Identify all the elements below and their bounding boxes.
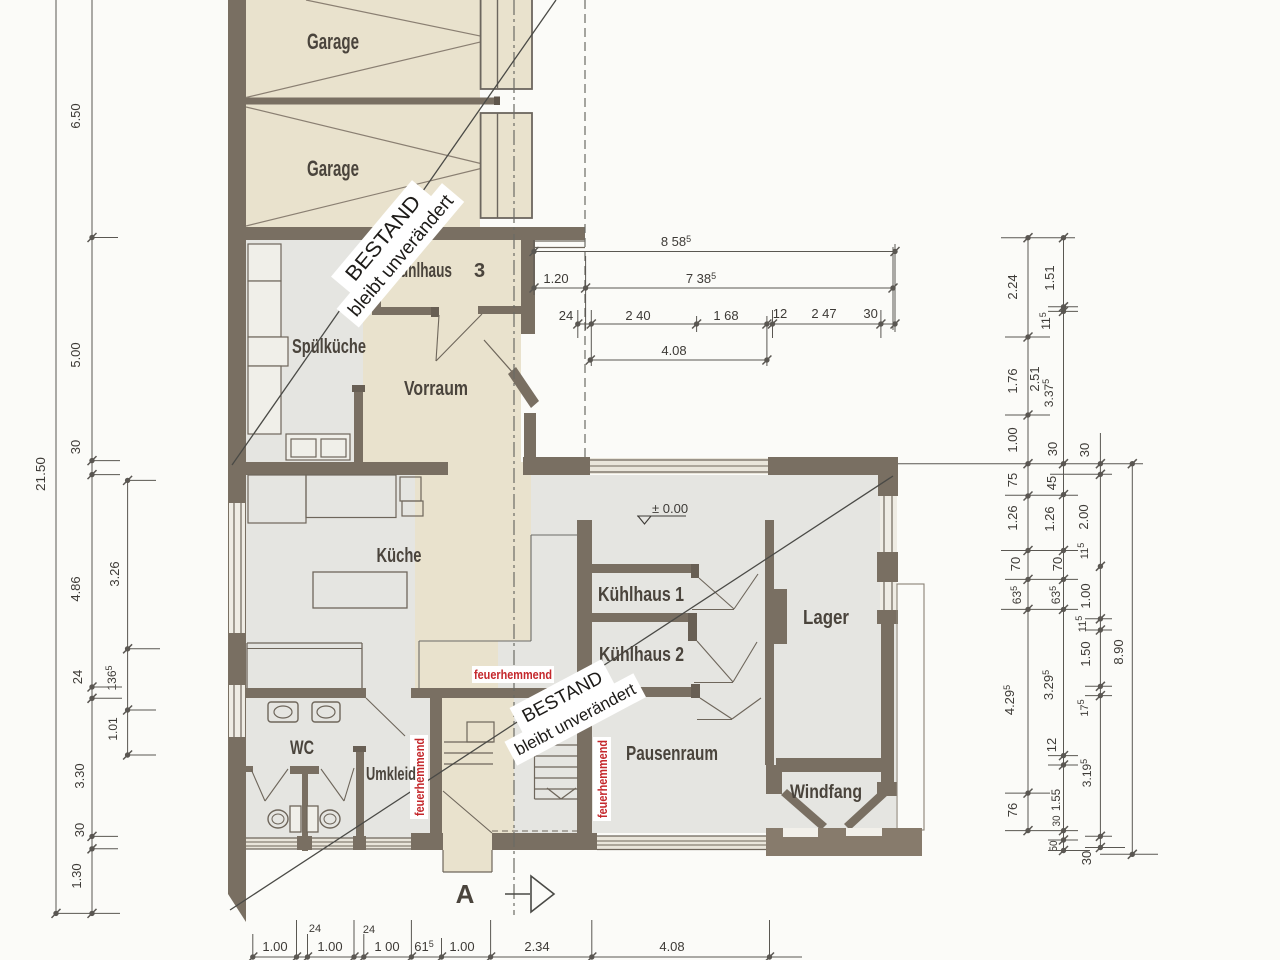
svg-text:1.00: 1.00 (1005, 427, 1020, 452)
svg-text:4.08: 4.08 (661, 343, 686, 358)
svg-text:30: 30 (72, 823, 87, 837)
svg-text:70: 70 (1008, 557, 1023, 571)
svg-text:2 40: 2 40 (625, 308, 650, 323)
svg-text:70: 70 (1050, 557, 1065, 571)
svg-text:24: 24 (309, 923, 321, 935)
svg-text:30: 30 (863, 306, 877, 321)
svg-text:2 47: 2 47 (811, 306, 836, 321)
svg-text:12: 12 (1044, 738, 1059, 752)
svg-text:2.24: 2.24 (1005, 274, 1020, 299)
svg-text:4.08: 4.08 (659, 939, 684, 954)
svg-text:1 00: 1 00 (374, 939, 399, 954)
svg-text:30: 30 (68, 440, 83, 454)
svg-text:feuerhemmend: feuerhemmend (595, 740, 610, 818)
svg-text:A: A (456, 879, 475, 909)
svg-text:6.50: 6.50 (68, 103, 83, 128)
svg-text:Garage: Garage (307, 156, 359, 181)
svg-text:24: 24 (559, 308, 573, 323)
svg-text:2.51: 2.51 (1027, 366, 1042, 391)
svg-text:1.55: 1.55 (1049, 789, 1063, 811)
svg-text:1.00: 1.00 (262, 939, 287, 954)
svg-text:30: 30 (1077, 443, 1092, 457)
svg-text:Vorraum: Vorraum (404, 378, 468, 400)
svg-text:1.00: 1.00 (1078, 583, 1093, 608)
svg-text:Windfang: Windfang (790, 782, 862, 803)
svg-text:Kühlhaus 1: Kühlhaus 1 (598, 584, 684, 606)
svg-text:30: 30 (1051, 816, 1063, 827)
svg-text:3.30: 3.30 (72, 763, 87, 788)
svg-text:1.20: 1.20 (543, 271, 568, 286)
svg-text:1.76: 1.76 (1005, 368, 1020, 393)
svg-text:1.00: 1.00 (317, 939, 342, 954)
svg-text:3: 3 (474, 260, 485, 282)
svg-text:50: 50 (1048, 841, 1060, 852)
svg-text:1.26: 1.26 (1005, 505, 1020, 530)
svg-text:Umkleid: Umkleid (366, 764, 416, 784)
svg-text:Spülküche: Spülküche (292, 336, 366, 358)
svg-text:2.34: 2.34 (524, 939, 549, 954)
svg-text:30: 30 (1045, 442, 1060, 456)
svg-text:30: 30 (1079, 851, 1094, 865)
svg-text:1.00: 1.00 (449, 939, 474, 954)
svg-text:4.86: 4.86 (68, 576, 83, 601)
svg-text:24: 24 (70, 670, 85, 684)
svg-text:24: 24 (363, 924, 375, 936)
svg-text:1.26: 1.26 (1042, 506, 1057, 531)
svg-text:21.50: 21.50 (33, 457, 48, 491)
svg-text:1.01: 1.01 (106, 717, 120, 741)
svg-text:feuerhemmend: feuerhemmend (474, 667, 552, 682)
svg-text:Küche: Küche (377, 545, 422, 567)
svg-text:Garage: Garage (307, 29, 359, 54)
svg-text:1 68: 1 68 (713, 308, 738, 323)
svg-text:Lager: Lager (803, 607, 849, 629)
svg-text:45: 45 (1044, 476, 1059, 490)
svg-text:5.00: 5.00 (68, 342, 83, 367)
svg-text:12: 12 (773, 306, 787, 321)
svg-text:1.51: 1.51 (1042, 265, 1057, 290)
svg-text:Pausenraum: Pausenraum (626, 743, 718, 765)
svg-text:76: 76 (1005, 803, 1020, 817)
svg-text:75: 75 (1005, 473, 1020, 487)
svg-text:8.90: 8.90 (1111, 639, 1126, 664)
svg-text:2.00: 2.00 (1076, 504, 1091, 529)
svg-text:1.50: 1.50 (1078, 641, 1093, 666)
svg-text:WC: WC (290, 738, 314, 759)
svg-text:1.30: 1.30 (69, 863, 84, 888)
svg-text:± 0.00: ± 0.00 (652, 501, 688, 516)
svg-text:3.26: 3.26 (107, 561, 122, 586)
svg-text:Kühlhaus 2: Kühlhaus 2 (599, 644, 684, 666)
